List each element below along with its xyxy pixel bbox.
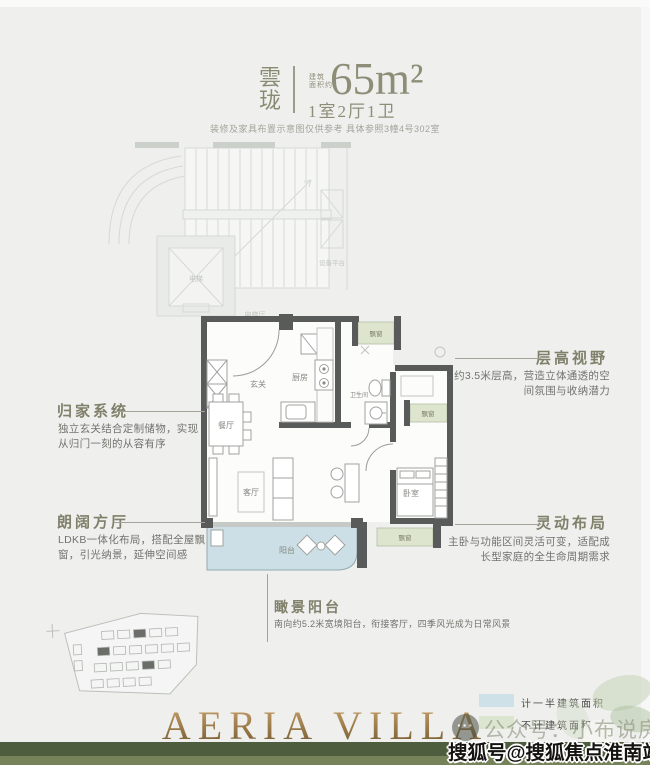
leader-balcony: [267, 574, 268, 642]
window-band: [213, 522, 351, 527]
project-name: 雲 珑: [250, 66, 290, 112]
floorplan-drawing: 电梯 电梯厅 设备平台: [95, 140, 455, 600]
callout-living-hall-body: LDKB一体化布局，搭配全屋飘 窗，引光纳景，延伸空间感: [58, 533, 258, 563]
callout-line: 主卧与功能区间灵活可变，适配成: [448, 535, 610, 550]
callout-home-system-body: 独立玄关结合定制储物，实现 从归门一刻的从容有序: [58, 422, 258, 452]
sohu-watermark: 搜狐号@搜狐焦点淮南站: [448, 736, 650, 765]
right-edge: [641, 0, 650, 742]
callout-flexible-layout-title: 灵动布局: [448, 512, 608, 533]
bedroom-label: 卧室: [403, 488, 419, 498]
leader-flexible-layout: [455, 524, 541, 525]
elevator-label: 电梯: [189, 274, 203, 283]
project-name-line2: 珑: [250, 89, 290, 112]
callout-line: 从归门一刻的从容有序: [58, 437, 258, 452]
bay-window-label-1: 飘窗: [370, 329, 383, 338]
callout-line: 间氛围与收纳潜力: [448, 384, 610, 399]
callout-line: 约3.5米层高，营造立体通透的空: [448, 369, 610, 384]
callout-line: 独立玄关结合定制储物，实现: [58, 422, 258, 437]
floorplan-poster: 雲 珑 建筑 面积约 65m² 1室2厅1卫 装修及家具布置示意图仅供参考 具体…: [0, 0, 650, 765]
bay-window-label-3: 飘窗: [399, 533, 412, 542]
living-label: 客厅: [243, 487, 259, 497]
callout-balcony-title: 瞰景阳台: [274, 597, 342, 617]
callout-line: 长型家庭的全生命周期需求: [448, 550, 610, 565]
disclaimer: 装修及家具布置示意图仅供参考 具体参照3幢4号302室: [0, 122, 650, 135]
callout-line: 窗，引光纳景，延伸空间感: [58, 548, 258, 563]
bathroom-label: 卫生间: [350, 391, 368, 399]
top-edge: [0, 0, 650, 7]
leader-home-system: [114, 411, 205, 412]
header-divider: [293, 66, 295, 113]
core-outline: [109, 142, 351, 316]
unit-layout: 1室2厅1卫: [308, 97, 397, 122]
callout-flexible-layout-body: 主卧与功能区间灵活可变，适配成 长型家庭的全生命周期需求: [448, 535, 610, 565]
callout-ceiling-view-body: 约3.5米层高，营造立体通透的空 间氛围与收纳潜力: [448, 369, 610, 399]
callout-balcony-body: 南向约5.2米宽境阳台，衔接客厅，四季风光成为日常风景: [274, 617, 504, 632]
balcony-label: 阳台: [279, 545, 295, 555]
leader-ceiling-view: [455, 358, 541, 359]
equipment-label: 设备平台: [319, 258, 345, 267]
bay-window-label-2: 飘窗: [422, 409, 435, 418]
leader-living-hall: [114, 522, 205, 523]
kitchen-label: 厨房: [292, 372, 308, 382]
entry-label: 玄关: [250, 379, 266, 389]
project-name-line1: 雲: [250, 66, 290, 89]
callout-line: LDKB一体化布局，搭配全屋飘: [58, 533, 258, 548]
site-plan: [45, 604, 215, 714]
area-value: 65m²: [330, 58, 424, 100]
